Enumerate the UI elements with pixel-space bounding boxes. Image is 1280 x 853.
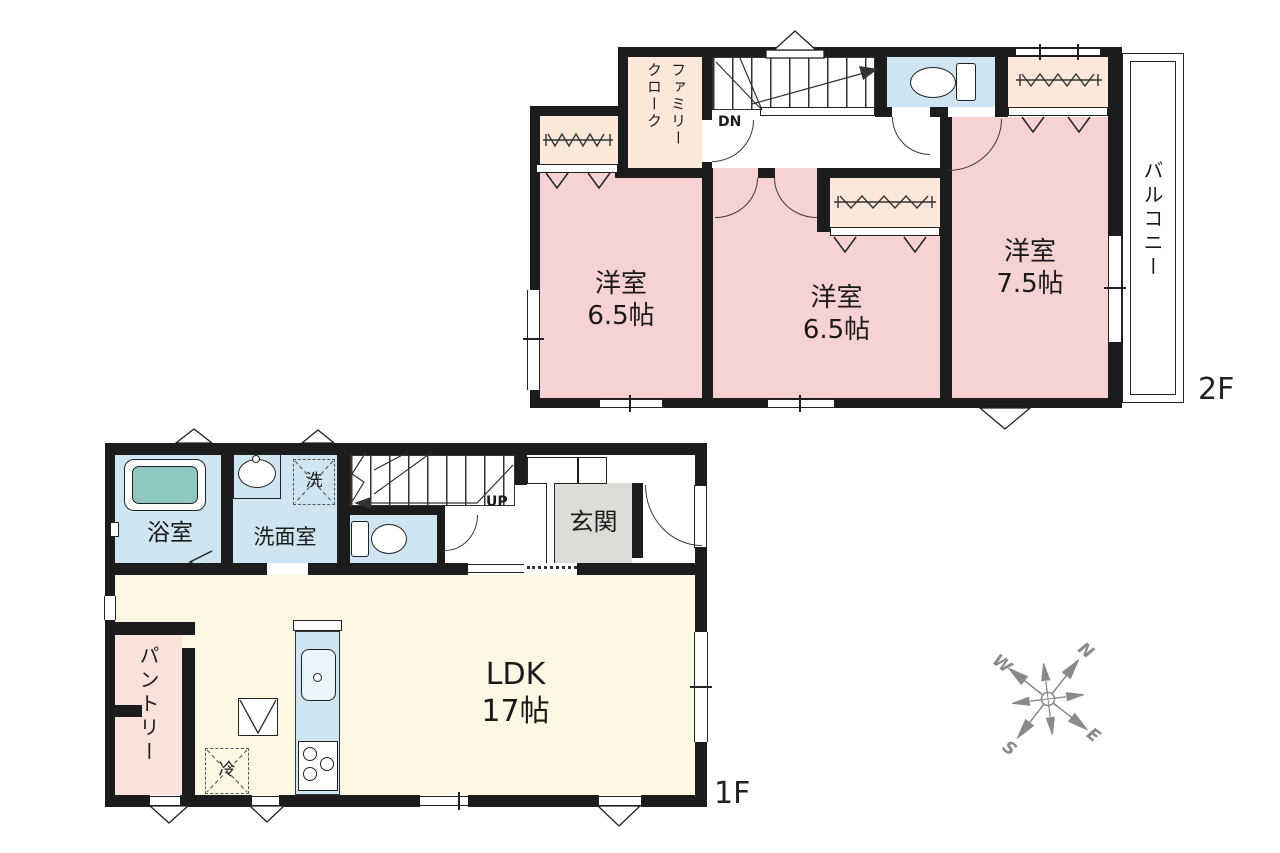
closet-bedroom-middle xyxy=(830,177,940,227)
compass-south-label: S xyxy=(998,737,1020,760)
window xyxy=(150,796,180,806)
toilet-tank-icon xyxy=(351,521,369,557)
shoe-cabinet xyxy=(527,457,607,484)
window xyxy=(599,796,641,806)
entrance-step-line xyxy=(546,483,555,563)
kitchen-tap-icon xyxy=(313,673,322,682)
stairs-down-label: DN xyxy=(718,114,741,130)
bedroom-left-label: 洋室6.5帖 xyxy=(540,258,702,342)
open-boundary xyxy=(527,566,577,569)
stairs-edge-2f xyxy=(760,107,875,116)
window xyxy=(1016,48,1100,56)
entrance-door-arc xyxy=(645,485,702,546)
compass-rose: N E S W xyxy=(950,602,1142,796)
window xyxy=(527,290,540,390)
stairs-2f xyxy=(712,57,875,110)
closet-door-bar xyxy=(536,164,618,173)
compass-west-label: W xyxy=(988,650,1016,678)
floor-hatch xyxy=(238,698,278,736)
sink-icon xyxy=(238,459,276,488)
closet-2f-left xyxy=(538,116,618,166)
washer-label: 洗 xyxy=(293,459,335,505)
window xyxy=(768,399,834,408)
bathtub-water xyxy=(132,466,198,504)
pantry-label: パントリー xyxy=(134,645,163,765)
closet-2f-topright xyxy=(1008,57,1108,107)
washroom-label: 洗面室 xyxy=(234,521,336,553)
sink-tap-icon xyxy=(252,455,260,463)
bath-faucet-icon xyxy=(110,522,119,537)
toilet-tank-icon xyxy=(956,63,976,101)
balcony-door xyxy=(1108,236,1122,342)
family-closet-label: ファミリークローク xyxy=(638,62,690,166)
compass-east-label: E xyxy=(1082,724,1104,747)
floor-plan: N E S W ファミリークローク DN 洋室6.5帖 洋室6.5帖 洋室7.5… xyxy=(0,0,1280,853)
closet-door-bar xyxy=(1008,107,1108,116)
toilet-bowl-icon xyxy=(910,67,956,98)
bedroom-middle-label: 洋室6.5帖 xyxy=(753,272,920,356)
burner-icon xyxy=(303,747,317,761)
burner-icon xyxy=(303,767,317,781)
stairs-up-label: UP xyxy=(486,494,508,510)
toilet-bowl-icon xyxy=(371,524,407,554)
burner-icon xyxy=(320,757,334,771)
floor-1f-label: 1F xyxy=(714,776,750,811)
floor-2f-label: 2F xyxy=(1198,372,1234,407)
door-arc xyxy=(445,515,478,551)
window xyxy=(468,564,524,573)
window xyxy=(252,796,279,806)
window xyxy=(420,796,468,806)
window xyxy=(600,399,662,408)
bathroom-label: 浴室 xyxy=(120,517,220,549)
ldk-label: LDK17帖 xyxy=(438,650,593,736)
door-arc xyxy=(892,117,930,155)
fridge-label: 冷 xyxy=(205,748,249,794)
closet-door-bar xyxy=(830,227,940,236)
bedroom-right-label: 洋室7.5帖 xyxy=(952,226,1108,310)
balcony-label: バルコニー xyxy=(1138,160,1167,280)
compass-north-label: N xyxy=(1074,639,1098,664)
entrance-label: 玄関 xyxy=(555,505,632,539)
ldk-room xyxy=(115,575,695,795)
kitchen-counter-edge xyxy=(293,620,342,631)
window xyxy=(104,596,116,620)
